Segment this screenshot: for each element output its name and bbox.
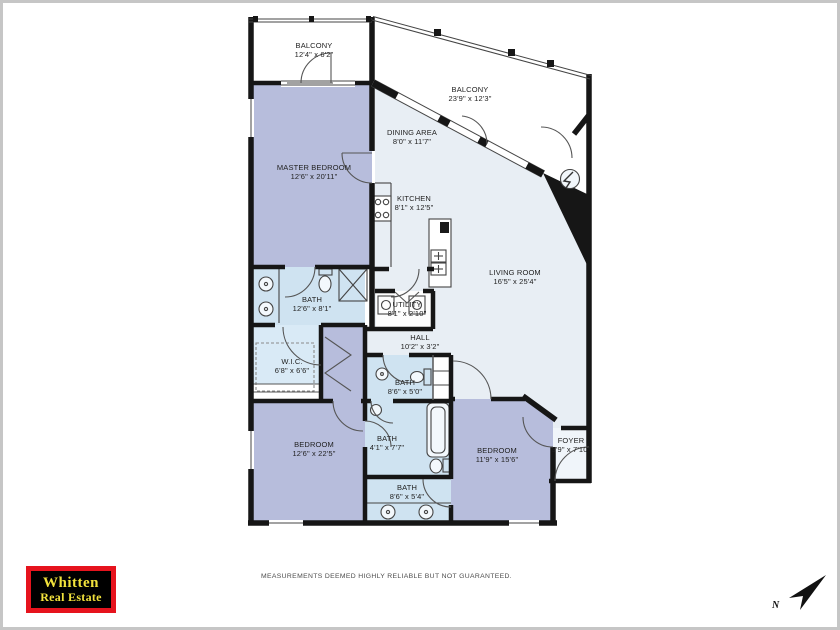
logo-panel: Whitten Real Estate xyxy=(31,571,111,608)
north-arrow-icon xyxy=(789,575,826,610)
room-label-balcony-2: BALCONY23'9" x 12'3" xyxy=(448,85,491,103)
room-label-wic: W.I.C.6'8" x 6'6" xyxy=(275,357,309,375)
floor-plan-page: BALCONY12'4" x 6'2" BALCONY23'9" x 12'3"… xyxy=(0,0,840,630)
room-label-utility: UTILITY8'1" x 2'10" xyxy=(388,300,427,318)
room-label-bedroom-right: BEDROOM11'9" x 15'6" xyxy=(476,446,519,464)
room-bedroom-left xyxy=(251,401,365,525)
room-label-hall: HALL10'2" x 3'2" xyxy=(401,333,440,351)
disclaimer-text: MEASUREMENTS DEEMED HIGHLY RELIABLE BUT … xyxy=(261,573,471,580)
room-label-dining-area: DINING AREA8'0" x 11'7" xyxy=(387,128,437,146)
room-label-master-bath: BATH12'6" x 8'1" xyxy=(293,295,332,313)
compass-north-label: N xyxy=(772,600,779,611)
room-label-balcony-1: BALCONY12'4" x 6'2" xyxy=(295,41,334,59)
room-label-bath-4: BATH8'6" x 5'4" xyxy=(390,483,424,501)
whitten-real-estate-logo: Whitten Real Estate xyxy=(26,566,116,613)
logo-line-1: Whitten xyxy=(43,576,99,591)
room-label-bedroom-left: BEDROOM12'6" x 22'5" xyxy=(292,440,335,458)
logo-line-2: Real Estate xyxy=(40,591,102,604)
electric-meter-icon xyxy=(561,170,580,189)
room-label-kitchen: KITCHEN8'1" x 12'5" xyxy=(395,194,434,212)
linen-closet xyxy=(433,356,451,400)
room-label-master-bedroom: MASTER BEDROOM12'6" x 20'11" xyxy=(277,163,351,181)
room-label-bath-2: BATH8'6" x 5'0" xyxy=(388,378,422,396)
room-label-foyer: FOYER3'9" x 7'10" xyxy=(552,436,591,454)
room-label-living-room: LIVING ROOM16'5" x 25'4" xyxy=(489,268,541,286)
room-label-bath-3: BATH4'1" x 7'7" xyxy=(370,434,404,452)
room-vestibule xyxy=(321,325,365,401)
